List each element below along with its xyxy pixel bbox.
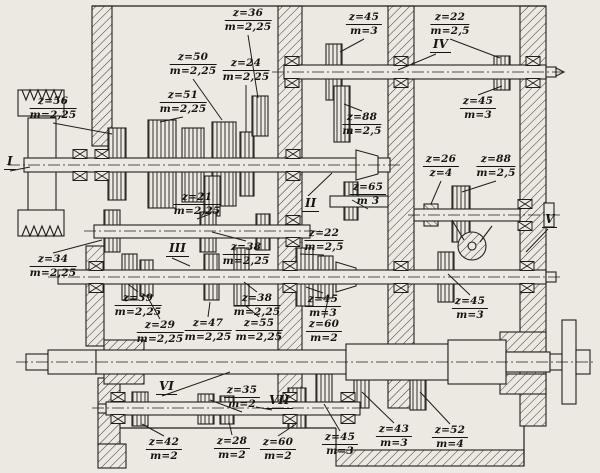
leader-line bbox=[10, 167, 30, 171]
leader-line bbox=[340, 39, 364, 52]
leader-line bbox=[344, 104, 362, 111]
leader-line bbox=[462, 181, 496, 192]
leader-line bbox=[300, 254, 324, 255]
leader-line bbox=[248, 35, 258, 98]
leader-line bbox=[352, 200, 368, 209]
leader-line bbox=[160, 117, 183, 122]
leader-lines bbox=[0, 0, 600, 473]
leader-line bbox=[306, 287, 323, 293]
leader-line bbox=[172, 258, 190, 266]
leader-line bbox=[212, 232, 246, 241]
leader-line bbox=[450, 39, 500, 58]
leader-line bbox=[128, 284, 138, 292]
drawing-canvas: z=36m=2,25z=45m=3z=22m=2,5z=50m=2,25z=24… bbox=[0, 0, 600, 473]
leader-line bbox=[420, 392, 450, 424]
leader-line bbox=[210, 400, 242, 412]
leader-line bbox=[142, 424, 164, 436]
leader-line bbox=[308, 173, 332, 196]
leader-line bbox=[162, 372, 230, 396]
leader-line bbox=[256, 407, 272, 410]
leader-line bbox=[448, 274, 470, 295]
leader-line bbox=[148, 298, 160, 319]
leader-line bbox=[53, 240, 102, 253]
leader-line bbox=[526, 229, 548, 252]
leader-line bbox=[208, 302, 210, 317]
leader-line bbox=[324, 404, 340, 431]
leader-line bbox=[193, 79, 222, 120]
leader-line bbox=[229, 422, 232, 435]
leader-line bbox=[478, 86, 502, 95]
leader-line bbox=[431, 181, 441, 204]
leader-line bbox=[278, 424, 296, 436]
leader-line bbox=[246, 306, 259, 317]
leader-line bbox=[244, 282, 257, 292]
leader-line bbox=[197, 214, 210, 219]
leader-line bbox=[53, 123, 112, 134]
leader-line bbox=[398, 54, 436, 70]
leader-line bbox=[324, 299, 328, 318]
leader-line bbox=[362, 392, 394, 423]
